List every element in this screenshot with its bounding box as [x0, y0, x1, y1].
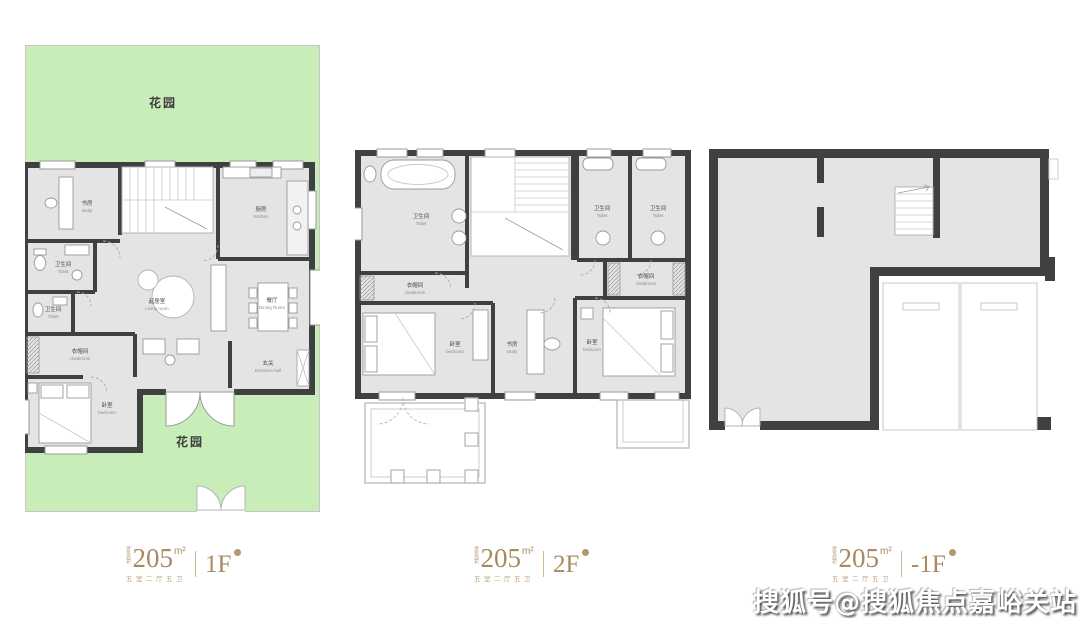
label-dining-zh: 餐厅 [266, 296, 278, 304]
plan-label-2f: 建筑面积 205 m² 五室二厅五卫 2F [474, 546, 589, 583]
label-toilet-a2-zh: 卫生间 [594, 204, 611, 212]
label-divider [543, 551, 544, 577]
terrace-right [617, 400, 689, 448]
area-value: 205 [839, 546, 880, 571]
label-living-en: Living room [145, 306, 169, 311]
label-cloak-left-zh: 衣帽间 [407, 281, 424, 289]
floor-plan-1f: 花园 花园 [25, 45, 320, 512]
garden-label-top: 花园 [149, 95, 177, 110]
terrace-left [365, 398, 485, 483]
entrance-cabinet [297, 350, 309, 386]
layout-description: 五室二厅五卫 [474, 573, 534, 583]
label-divider [901, 551, 902, 577]
label-entrance-en: Entrance hall [255, 368, 281, 373]
floor-plan-2f: 卫生间 Toilet 卫生间 Toilet 卫生间 Toilet 衣帽间 clo… [355, 148, 700, 513]
area-value: 205 [481, 546, 522, 571]
area-prefix: 建筑面积 [126, 546, 131, 568]
label-cloak-right-zh: 衣帽间 [638, 272, 655, 280]
gold-dot-icon [234, 549, 241, 556]
area-unit: m² [174, 547, 186, 557]
label-kitchen-zh: 厨房 [255, 205, 267, 213]
label-toilet-a-en: Toilet [58, 269, 69, 274]
garden-label-bottom: 花园 [176, 434, 204, 449]
area-prefix: 建筑面积 [832, 546, 837, 568]
gold-dot-icon [582, 549, 589, 556]
label-bath-en: Toilet [416, 221, 427, 226]
label-bedroom-zh: 卧室 [101, 401, 113, 409]
label-study-zh: 书房 [81, 199, 93, 207]
label-bedroom-left-zh: 卧室 [449, 340, 461, 348]
label-bedroom-right-en: bedroom [583, 347, 601, 352]
label-living-zh: 起居室 [149, 297, 166, 305]
area-value: 205 [133, 546, 174, 571]
floor-text: 1F [205, 551, 231, 578]
floor-text: 2F [553, 551, 579, 578]
label-bedroom-en: bedroom [98, 410, 116, 415]
label-cloak-left-en: cloakroom [405, 290, 426, 295]
label-divider [195, 551, 196, 577]
label-cloak-right-en: cloakroom [636, 281, 657, 286]
label-cloakroom-en: cloakroom [70, 356, 91, 361]
cloakroom-wardrobe [27, 337, 39, 373]
floor-name: -1F [911, 552, 956, 577]
floor-plan-b1 [705, 145, 1060, 440]
plan-label-1f: 建筑面积 205 m² 五室二厅五卫 1F [126, 546, 241, 583]
watermark-text: 搜狐号@搜狐焦点嘉峪关站 [753, 582, 1077, 618]
floor-text: -1F [911, 551, 946, 578]
cloak-left-wardrobe [360, 276, 374, 300]
label-kitchen-en: Kitchen [253, 214, 269, 219]
label-toilet-b-zh: 卫生间 [45, 305, 62, 313]
basement [709, 149, 1058, 430]
area-block-2f: 建筑面积 205 m² 五室二厅五卫 [474, 546, 534, 583]
label-study-en: study [82, 208, 94, 213]
label-toilet-a-zh: 卫生间 [55, 260, 72, 268]
floor-name: 2F [553, 552, 589, 577]
exterior-detail [1049, 159, 1058, 179]
area-block-b1: 建筑面积 205 m² 五室二厅五卫 [832, 546, 892, 583]
label-study2-en: study [507, 349, 519, 354]
label-bath-zh: 卫生间 [413, 212, 430, 220]
label-study2-zh: 书房 [506, 340, 518, 348]
label-bedroom-left-en: bedroom [446, 349, 464, 354]
label-toilet-b-en: Toilet [48, 314, 59, 319]
label-toilet-b2-en: Toilet [653, 213, 664, 218]
staircase-b1 [895, 185, 933, 235]
area-unit: m² [522, 547, 534, 557]
label-entrance-zh: 玄关 [262, 359, 274, 367]
garage-doors [883, 283, 1037, 430]
label-bedroom-right-zh: 卧室 [586, 338, 598, 346]
label-dining-en: Dining Room [259, 305, 285, 310]
label-toilet-b2-zh: 卫生间 [650, 204, 667, 212]
area-prefix: 建筑面积 [474, 546, 479, 568]
staircase-1f [122, 167, 213, 233]
label-toilet-a2-en: Toilet [597, 213, 608, 218]
plan-label-b1: 建筑面积 205 m² 五室二厅五卫 -1F [832, 546, 956, 583]
gold-dot-icon [949, 549, 956, 556]
floorplan-image: 花园 花园 [0, 0, 1080, 618]
area-block-1f: 建筑面积 205 m² 五室二厅五卫 [126, 546, 186, 583]
layout-description: 五室二厅五卫 [126, 573, 186, 583]
area-unit: m² [880, 547, 892, 557]
floor-name: 1F [205, 552, 241, 577]
label-cloakroom-zh: 衣帽间 [72, 347, 89, 355]
staircase-2f [471, 157, 569, 256]
